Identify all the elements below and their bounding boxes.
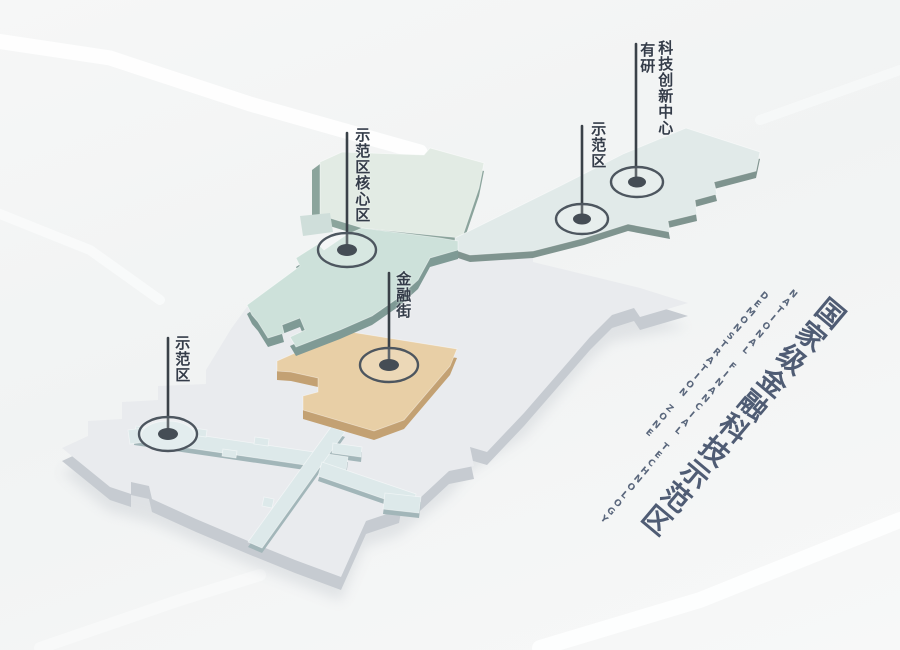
core-area-upper-plate[interactable]	[300, 148, 484, 246]
upper-plate-ledge	[300, 213, 333, 236]
pin-dot	[158, 428, 178, 440]
label-core-area: 示范区核心区	[353, 127, 370, 223]
pin-dot	[573, 214, 591, 225]
pin-dot	[337, 244, 357, 256]
innovation-center-plate[interactable]	[455, 128, 760, 262]
pin-dot	[628, 177, 646, 188]
pin-dot	[379, 359, 399, 371]
isometric-district-map: 示范区核心区 金融街 示范区 有研 科技创新中心 示范区 国家级金融科技示范区 …	[0, 0, 900, 650]
label-demo-zone-ne: 示范区	[589, 121, 606, 169]
label-finance-street: 金融街	[394, 271, 411, 319]
label-innovation-center: 科技创新中心	[656, 40, 673, 136]
label-innovation-center-prefix: 有研	[638, 42, 655, 74]
label-demo-zone-sw: 示范区	[173, 335, 190, 383]
